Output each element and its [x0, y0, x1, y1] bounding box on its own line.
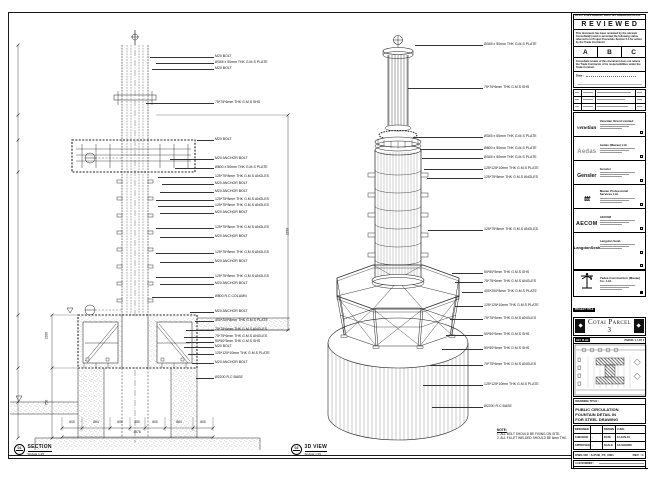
dimension-value: 750 — [46, 400, 49, 406]
consultant-logo: AECOM — [574, 212, 600, 230]
checkbox-icon[interactable] — [640, 227, 644, 231]
stamp-status-options: ABC — [574, 46, 645, 59]
border-left — [8, 12, 9, 458]
consultant-name: Langdon Seah — [600, 240, 640, 243]
consultant-row: Gensler Gensler — [574, 161, 645, 185]
fields-row: APPROVED - SCALE AS SHOWN — [574, 442, 645, 449]
dimension-value: 4578 — [133, 431, 140, 434]
border-top — [8, 12, 648, 13]
consultant-address — [600, 172, 640, 177]
drawing-title-line: FOR STEEL DRAWING — [575, 417, 643, 422]
consultant-logo: ttt — [574, 188, 600, 206]
dimension-value: 864 — [93, 421, 99, 424]
revision-row — [574, 90, 645, 97]
detail-bubble-icon: 01- — [14, 444, 25, 455]
cad-label: CAD NUMBER : — [575, 462, 594, 465]
consultant-logo: Gensler — [574, 164, 600, 182]
consultant-row: venetian Venetian Orient Limited — [574, 113, 645, 137]
dimension-value: 600 — [152, 421, 158, 424]
consultant-address — [600, 244, 640, 249]
note-line: 2. ALL FILLET WELDED SHOULD BE 6mm THK. — [497, 436, 567, 440]
consultant-row: LangdonSeah Langdon Seah — [574, 233, 645, 256]
project-title-band: Cotai Parcel 3 — [573, 317, 646, 336]
checkbox-icon[interactable] — [640, 179, 644, 183]
field-label: APPROVED — [574, 442, 591, 449]
field-value: LUNG — [616, 426, 645, 433]
stamp-date-row: Date : — [574, 71, 645, 79]
revision-row — [574, 97, 645, 104]
ornament-icon — [575, 319, 585, 333]
consultant-address — [600, 148, 640, 153]
field-label: SCALE — [603, 442, 616, 449]
dimension-value: 600 — [117, 421, 123, 424]
field-value: - — [591, 442, 603, 449]
consultant-name: Aedas (Macau) Ltd. — [600, 144, 640, 147]
consultant-name: Venetian Orient Limited — [600, 120, 640, 123]
dwg-number-row: DWG NO : S-PUB_FS_0001 REV : C — [573, 451, 646, 459]
iso-view-drawing — [290, 25, 570, 450]
consultant-row: Aedas Aedas (Macau) Ltd. — [574, 137, 645, 161]
view-title: 02- 3D VIEWSCALE 1:25 — [291, 444, 327, 456]
contractor-name: Yadea Construction (Macau) Co., Ltd. — [600, 277, 640, 284]
fields-table: DESIGNED DRAWN LUNG CHECKED - DATE 14-JA… — [573, 425, 646, 449]
field-label: DESIGNED — [574, 426, 591, 433]
dimension-value: 450 — [134, 421, 140, 424]
consultant-address — [600, 198, 640, 203]
consultant-logo: Aedas — [574, 140, 600, 158]
contractor-row: Yadea Construction (Macau) Co., Ltd. — [574, 270, 645, 296]
rev-label: REV : — [633, 453, 641, 457]
key-plan-box: KEY PLAN PARCEL 1, LOT 2 — [573, 337, 646, 397]
dimension-value: 600 — [200, 421, 206, 424]
revision-row — [574, 104, 645, 110]
consultant-logo: LangdonSeah — [574, 236, 600, 254]
checkbox-icon[interactable] — [640, 155, 644, 159]
consultant-row: ttt Macau Professional Services Ltd. — [574, 185, 645, 209]
dimension-value: 1500 — [46, 332, 49, 339]
status-option[interactable]: A — [574, 47, 598, 58]
notes-block: NOTE: 1. ALL BOLT SHOULD BE FIXING ON SI… — [497, 428, 567, 440]
status-option[interactable]: C — [622, 47, 645, 58]
ornament-icon — [634, 319, 644, 333]
drawing-title-box: DRAWING TITLE : PUBLIC CIRCULATIONFOUNTA… — [573, 398, 646, 424]
border-bottom-outer — [8, 458, 571, 459]
stamp-title: REVIEWED — [574, 20, 645, 31]
consultant-row-empty — [574, 256, 645, 270]
cad-row: CAD FILE NAME : S-PUB_FS_0001.dwg — [574, 467, 645, 468]
checkbox-icon[interactable] — [640, 264, 644, 268]
dwg-label: DWG NO : — [575, 453, 590, 457]
field-value: AS SHOWN — [616, 442, 645, 449]
project-title-tag: PROJECT TITLE — [573, 308, 596, 312]
detail-bubble-icon: 02- — [291, 444, 302, 455]
dwg-value: S-PUB_FS_0001 — [591, 453, 614, 457]
cad-rows: CAD NUMBER : CAD FILE NAME : S-PUB_FS_00… — [573, 460, 646, 469]
date-label: Date : — [576, 74, 584, 78]
checkbox-icon[interactable] — [640, 131, 644, 135]
consultant-name: Gensler — [600, 168, 640, 171]
checkbox-icon[interactable] — [640, 203, 644, 207]
key-plan-sub: PARCEL 1, LOT 2 — [624, 339, 644, 342]
view-title: 01- SECTIONSCALE 1:25 — [14, 444, 52, 456]
checkbox-icon[interactable] — [640, 251, 644, 255]
field-value: - — [591, 434, 603, 441]
field-label: CHECKED — [574, 434, 591, 441]
border-bottom-inner — [8, 455, 571, 456]
project-title: Cotai Parcel 3 — [587, 318, 632, 334]
field-value — [591, 426, 603, 433]
field-label: DRAWN — [603, 426, 616, 433]
stamp-paragraph: This document has been reviewed by the r… — [574, 30, 645, 45]
consultant-name: Macau Professional Services Ltd. — [600, 190, 640, 197]
date-line[interactable] — [586, 73, 636, 77]
section-view-drawing — [10, 25, 290, 450]
crane-logo-icon — [574, 272, 600, 295]
dimension-value: 600 — [69, 421, 75, 424]
rev-value: C — [642, 453, 644, 457]
fields-row: CHECKED - DATE 14-JAN-10 — [574, 434, 645, 442]
review-stamp: DO NOT SCALE DRAWING. VERIFY ALL DIMENSI… — [573, 14, 646, 88]
fields-row: DESIGNED DRAWN LUNG — [574, 426, 645, 434]
signature-area — [577, 79, 642, 85]
drawing-title-lines: PUBLIC CIRCULATIONFOUNTAIN DETAIL INFOR … — [574, 405, 645, 423]
stamp-paragraph2: Consultant review of this document does … — [574, 58, 645, 70]
consultant-panel: venetian Venetian Orient Limited Aedas A… — [573, 112, 646, 297]
field-value: 14-JAN-10 — [616, 434, 645, 441]
key-plan-drawing — [574, 344, 647, 396]
checkbox-filled-icon — [640, 291, 644, 295]
consultant-logo: venetian — [574, 116, 600, 134]
consultant-row: AECOM AECOM — [574, 209, 645, 233]
title-block: DO NOT SCALE DRAWING. VERIFY ALL DIMENSI… — [571, 13, 648, 469]
revision-table — [573, 89, 646, 111]
consultant-address — [600, 124, 640, 129]
consultant-address — [600, 220, 640, 225]
consultant-name: AECOM — [600, 216, 640, 219]
placeholder-bar — [599, 463, 644, 464]
field-label: DATE — [603, 434, 616, 441]
contractor-address — [600, 285, 640, 290]
dimension-value: 2250 — [287, 228, 290, 235]
status-option[interactable]: B — [598, 47, 622, 58]
drawing-sheet: M20 BOLTØ345 x 50mm THK G.M.S PLATEM20 B… — [0, 0, 650, 488]
dimension-value: 864 — [176, 421, 182, 424]
key-plan-label: KEY PLAN — [575, 338, 590, 342]
